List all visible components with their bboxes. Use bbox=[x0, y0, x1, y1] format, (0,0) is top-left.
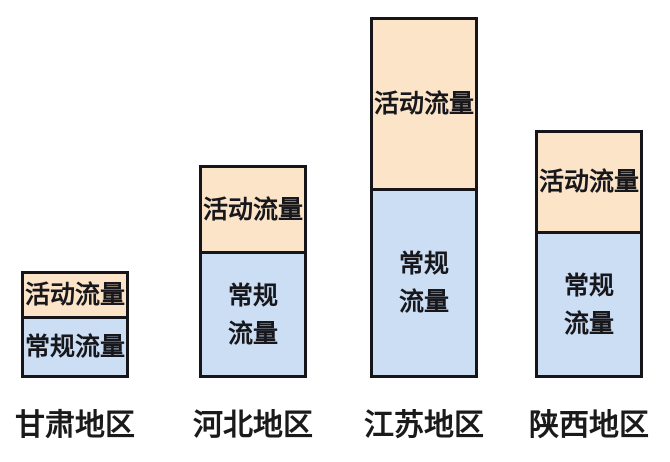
category-label: 江苏地区 bbox=[364, 400, 484, 444]
segment-label: 常规 bbox=[399, 245, 449, 283]
stacked-bar: 活动流量常规流量 bbox=[199, 165, 307, 378]
segment-label: 活动流量 bbox=[539, 163, 639, 201]
activity-segment: 活动流量 bbox=[538, 133, 640, 234]
activity-segment: 活动流量 bbox=[24, 274, 126, 319]
segment-label: 常规流量 bbox=[25, 328, 125, 366]
segment-label: 活动流量 bbox=[374, 85, 474, 123]
segment-label: 活动流量 bbox=[25, 276, 125, 314]
activity-segment: 活动流量 bbox=[202, 168, 304, 254]
segment-label: 常规 bbox=[228, 277, 278, 315]
segment-label: 活动流量 bbox=[203, 191, 303, 229]
category-label: 甘肃地区 bbox=[15, 400, 135, 444]
category-label: 陕西地区 bbox=[529, 400, 649, 444]
regular-segment: 常规流量 bbox=[202, 254, 304, 375]
category-label: 河北地区 bbox=[193, 400, 313, 444]
stacked-bar: 活动流量常规流量 bbox=[370, 17, 478, 378]
activity-segment: 活动流量 bbox=[373, 20, 475, 191]
stacked-bar-chart: 活动流量常规流量甘肃地区活动流量常规流量河北地区活动流量常规流量江苏地区活动流量… bbox=[0, 0, 670, 462]
regular-segment: 常规流量 bbox=[538, 234, 640, 375]
stacked-bar: 活动流量常规流量 bbox=[535, 130, 643, 378]
segment-label: 流量 bbox=[228, 315, 278, 353]
segment-label: 流量 bbox=[399, 283, 449, 321]
segment-label: 流量 bbox=[564, 305, 614, 343]
regular-segment: 常规流量 bbox=[24, 319, 126, 375]
regular-segment: 常规流量 bbox=[373, 191, 475, 375]
segment-label: 常规 bbox=[564, 267, 614, 305]
stacked-bar: 活动流量常规流量 bbox=[21, 271, 129, 378]
